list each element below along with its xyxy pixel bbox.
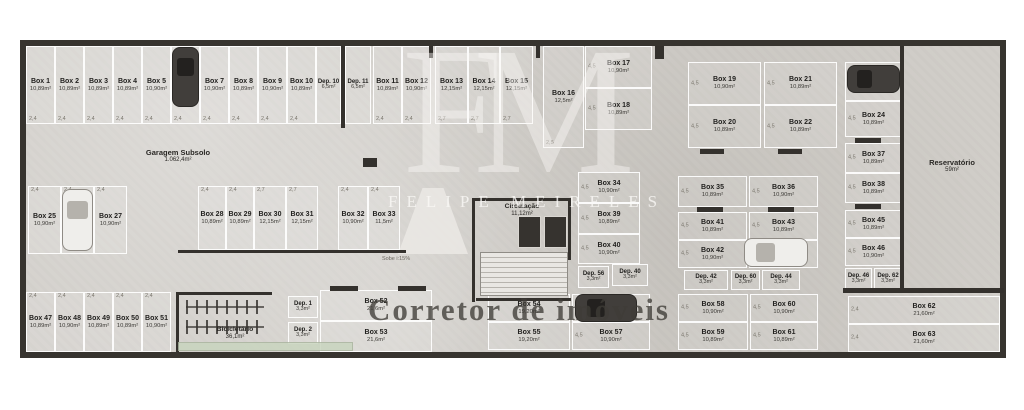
dimension-label: 2,4 [58, 294, 66, 300]
dimension-label: 2,4 [29, 294, 37, 300]
dimension-label: 2,4 [145, 117, 153, 123]
dimension-label: 2,4 [87, 117, 95, 123]
parking-box-37: Box 3710,89m²4,5 [845, 143, 902, 173]
box-area: 12,15m² [473, 86, 494, 92]
box-area: 3,3m² [587, 277, 601, 283]
car-top-view [745, 239, 807, 266]
box-label: Box 17 [607, 60, 630, 68]
box-area: 10,90m² [146, 86, 167, 92]
dimension-label: 2,4 [29, 117, 37, 123]
bike-room-label: Bicicletário 36,1m² [190, 326, 280, 341]
box-area: 10,89m² [377, 86, 398, 92]
dimension-label: 4,5 [681, 305, 689, 311]
wall-segment [178, 250, 406, 253]
box-area: 12,15m² [506, 86, 527, 92]
box-label: Box 43 [772, 219, 795, 227]
box-area: 10,89m² [229, 219, 250, 225]
box-area: 10,90m² [702, 309, 723, 315]
storage-dep-1: Dep. 13,3m² [288, 296, 318, 318]
box-label: Box 55 [518, 329, 541, 337]
parking-box-55: Box 5519,20m² [488, 322, 570, 350]
dimension-label: 2,4 [31, 188, 39, 194]
box-area: 6,5m² [322, 85, 336, 91]
box-label: Box 14 [473, 78, 496, 86]
floorplan-page: Garagem Subsolo 1.062,4m² Circulação 11,… [0, 0, 1024, 410]
dimension-label: 2,4 [116, 294, 124, 300]
wall-segment [655, 46, 664, 59]
box-area: 10,89m² [30, 323, 51, 329]
dimension-label: 4,5 [767, 124, 775, 130]
wall-segment [429, 46, 433, 58]
box-area: 10,89m² [702, 227, 723, 233]
box-area: 10,89m² [773, 337, 794, 343]
box-area: 21,60m² [913, 339, 934, 345]
parking-box-13: Box 1312,15m²2,7 [435, 46, 468, 124]
dimension-label: 4,5 [681, 251, 689, 257]
parking-box-57: Box 5710,90m²4,5 [572, 322, 650, 350]
parking-box-43: Box 4310,89m²4,5 [749, 212, 818, 240]
box-area: 10,90m² [773, 192, 794, 198]
box-label: Box 52 [365, 298, 388, 306]
dimension-label: 2,4 [229, 188, 237, 194]
parking-box-38: Box 3810,89m²4,5 [845, 173, 902, 203]
garage-area: 1.062,4m² [118, 157, 238, 164]
parking-box-21: Box 2110,89m²4,5 [764, 62, 837, 105]
dimension-label: 2,4 [371, 188, 379, 194]
box-label: Box 35 [701, 184, 724, 192]
box-label: Box 4 [118, 78, 137, 86]
parking-box-17: Box 1710,90m²4,5 [585, 46, 652, 88]
reservoir-name: Reservatório [904, 158, 1000, 167]
parking-box-61: Box 6110,89m²4,5 [750, 322, 818, 350]
box-area: 10,90m² [34, 221, 55, 227]
dimension-label: 2,5 [546, 141, 554, 147]
dimension-label: 2,4 [851, 335, 859, 341]
dimension-label: 2,7 [471, 117, 479, 123]
box-area: 3,3m² [774, 280, 788, 286]
box-area: 10,90m² [406, 86, 427, 92]
box-area: 10,90m² [598, 250, 619, 256]
dimension-label: 4,5 [681, 333, 689, 339]
box-label: Box 5 [147, 78, 166, 86]
box-area: 21,60m² [913, 311, 934, 317]
box-label: Box 22 [789, 119, 812, 127]
parking-box-24: Box 2410,89m²4,5 [845, 101, 902, 137]
wall-segment [855, 138, 881, 143]
parking-box-9: Box 910,90m²2,4 [258, 46, 287, 124]
storage-dep-60: Dep. 603,3m² [731, 270, 760, 290]
box-label: Box 32 [342, 211, 365, 219]
wall-segment [363, 158, 377, 167]
wall-segment [768, 207, 794, 212]
box-label: Box 30 [259, 211, 282, 219]
parking-box-46: Box 4610,90m²4,5 [845, 238, 902, 266]
parking-box-18: Box 1810,89m²4,5 [585, 88, 652, 130]
box-area: 10,90m² [342, 219, 363, 225]
box-area: 10,90m² [59, 323, 80, 329]
dimension-label: 4,5 [691, 124, 699, 130]
car-top-view [63, 190, 92, 250]
parking-box-36: Box 3610,90m²4,5 [749, 176, 818, 207]
parking-box-5: Box 510,90m²2,4 [142, 46, 171, 124]
box-area: 10,90m² [100, 221, 121, 227]
car-top-view [173, 48, 198, 106]
box-area: 10,90m² [702, 255, 723, 261]
dimension-label: 2,4 [87, 294, 95, 300]
box-label: Box 28 [201, 211, 224, 219]
parking-box-45: Box 4510,89m²4,5 [845, 210, 902, 238]
box-label: Box 34 [598, 180, 621, 188]
dimension-label: 2,4 [232, 117, 240, 123]
parking-box-19: Box 1910,90m²4,5 [688, 62, 761, 105]
box-label: Box 46 [862, 245, 885, 253]
box-area: 10,90m² [773, 309, 794, 315]
car-windshield [67, 201, 87, 219]
box-label: Box 13 [440, 78, 463, 86]
box-area: 10,89m² [702, 337, 723, 343]
dimension-label: 4,5 [581, 216, 589, 222]
box-label: Box 2 [60, 78, 79, 86]
parking-box-33: Box 3311,5m²2,4 [368, 186, 400, 250]
dimension-label: 4,5 [752, 189, 760, 195]
parking-box-30: Box 3012,15m²2,7 [254, 186, 286, 250]
box-label: Box 27 [99, 213, 122, 221]
dimension-label: 2,4 [376, 117, 384, 123]
dimension-label: 2,7 [503, 117, 511, 123]
dimension-label: 4,5 [681, 189, 689, 195]
box-label: Box 16 [552, 90, 575, 98]
garage-name: Garagem Subsolo [118, 148, 238, 157]
car-top-view [848, 66, 899, 92]
wall-segment [330, 286, 358, 291]
parking-box-7: Box 710,90m²2,4 [200, 46, 229, 124]
car-windshield [587, 299, 605, 317]
dimension-label: 2,4 [145, 294, 153, 300]
box-area: 10,89m² [291, 86, 312, 92]
dimension-label: 4,5 [848, 249, 856, 255]
wall-segment [472, 198, 475, 302]
parking-box-50: Box 5010,89m²2,4 [113, 292, 142, 352]
parking-box-15: Box 1512,15m²2,7 [500, 46, 533, 124]
box-area: 21,6m² [367, 337, 385, 343]
box-label: Box 60 [773, 301, 796, 309]
dimension-label: 4,5 [753, 333, 761, 339]
box-label: Box 20 [713, 119, 736, 127]
dimension-label: 4,5 [575, 333, 583, 339]
dimension-label: 2,4 [203, 117, 211, 123]
car-windshield [756, 243, 775, 262]
box-area: 19,20m² [518, 337, 539, 343]
box-area: 10,90m² [204, 86, 225, 92]
parking-box-40: Box 4010,90m²4,5 [578, 234, 640, 264]
dimension-label: 4,5 [691, 81, 699, 87]
box-area: 3,3m² [852, 279, 866, 285]
dimension-label: 4,5 [848, 221, 856, 227]
wall-segment [536, 46, 540, 58]
box-label: Box 29 [229, 211, 252, 219]
dimension-label: 2,4 [261, 117, 269, 123]
storage-dep-11: Dep. 116,5m² [345, 46, 371, 124]
elevator-shaft [518, 216, 541, 248]
box-label: Box 50 [116, 315, 139, 323]
dimension-label: 2,4 [58, 117, 66, 123]
box-area: 10,90m² [714, 84, 735, 90]
box-area: 10,90m² [608, 68, 629, 74]
car-windshield [857, 70, 872, 88]
wall-segment [700, 149, 724, 154]
box-label: Box 3 [89, 78, 108, 86]
wall-segment [476, 298, 571, 301]
box-label: Box 48 [58, 315, 81, 323]
dimension-label: 4,5 [681, 223, 689, 229]
parking-box-8: Box 810,89m²2,4 [229, 46, 258, 124]
box-area: 11,5m² [375, 219, 393, 225]
box-area: 10,90m² [598, 188, 619, 194]
parking-box-27: Box 2710,90m²2,4 [94, 186, 127, 254]
box-label: Box 37 [862, 151, 885, 159]
box-area: 10,89m² [59, 86, 80, 92]
dimension-label: 2,4 [290, 117, 298, 123]
storage-dep-42: Dep. 423,3m² [684, 270, 728, 290]
box-label: Box 57 [600, 329, 623, 337]
reservoir-area: 59m² [904, 167, 1000, 174]
dimension-label: 2,4 [174, 117, 182, 123]
box-label: Box 58 [702, 301, 725, 309]
box-area: 3,3m² [699, 280, 713, 286]
box-area: 10,89m² [714, 127, 735, 133]
parking-box-47: Box 4710,89m²2,4 [26, 292, 55, 352]
dimension-label: 4,5 [848, 185, 856, 191]
box-label: Box 47 [29, 315, 52, 323]
dimension-label: 4,5 [581, 185, 589, 191]
parking-box-52: Box 5221,6m² [320, 290, 432, 321]
box-area: 10,89m² [790, 127, 811, 133]
storage-dep-2: Dep. 23,3m² [288, 322, 318, 344]
box-area: 3,3m² [296, 307, 310, 313]
parking-box-14: Box 1412,15m²2,7 [468, 46, 500, 124]
reservoir-room-label: Reservatório 59m² [904, 158, 1000, 174]
wall-segment [778, 149, 802, 154]
dimension-label: 2,7 [438, 117, 446, 123]
box-area: 10,89m² [598, 219, 619, 225]
parking-box-41: Box 4110,89m²4,5 [678, 212, 747, 240]
parking-box-2: Box 210,89m²2,4 [55, 46, 84, 124]
box-label: Box 41 [701, 219, 724, 227]
box-area: 10,90m² [863, 253, 884, 259]
elevator-shaft [544, 216, 567, 248]
garage-room-label: Garagem Subsolo 1.062,4m² [118, 148, 238, 164]
box-area: 10,89m² [863, 225, 884, 231]
box-label: Box 21 [789, 76, 812, 84]
parking-box-20: Box 2010,89m²4,5 [688, 105, 761, 148]
car-windshield [177, 58, 195, 75]
dimension-label: 2,4 [851, 307, 859, 313]
dimension-label: 2,7 [257, 188, 265, 194]
box-area: 10,89m² [790, 84, 811, 90]
parking-box-10: Box 1010,89m²2,4 [287, 46, 316, 124]
box-area: 10,89m² [201, 219, 222, 225]
storage-dep-46: Dep. 463,3m² [845, 268, 872, 290]
box-area: 10,90m² [600, 337, 621, 343]
parking-box-31: Box 3112,15m²2,7 [286, 186, 318, 250]
box-area: 3,3m² [296, 333, 310, 339]
box-label: Box 18 [607, 102, 630, 110]
circulation-area: 11,12m² [476, 211, 568, 218]
box-area: 3,3m² [623, 275, 637, 281]
parking-box-32: Box 3210,90m²2,4 [338, 186, 368, 250]
box-label: Box 12 [405, 78, 428, 86]
dimension-label: 4,5 [767, 81, 775, 87]
storage-dep-62: Dep. 623,3m² [874, 268, 902, 290]
box-label: Box 42 [701, 247, 724, 255]
parking-box-58: Box 5810,90m²4,5 [678, 294, 748, 322]
box-label: Box 9 [263, 78, 282, 86]
box-label: Box 31 [291, 211, 314, 219]
box-label: Box 8 [234, 78, 253, 86]
dimension-label: 2,4 [116, 117, 124, 123]
storage-dep-10: Dep. 106,5m² [316, 46, 341, 124]
box-area: 10,89m² [117, 86, 138, 92]
dimension-label: 2,4 [405, 117, 413, 123]
box-label: Box 24 [862, 112, 885, 120]
box-label: Box 25 [33, 213, 56, 221]
parking-box-59: Box 5910,89m²4,5 [678, 322, 748, 350]
dimension-label: 4,5 [752, 223, 760, 229]
box-label: Box 59 [702, 329, 725, 337]
box-area: 12,5m² [554, 98, 572, 104]
bike-room-name: Bicicletário [190, 326, 280, 334]
parking-box-25: Box 2510,90m²2,4 [28, 186, 61, 254]
box-label: Box 10 [290, 78, 313, 86]
box-label: Box 40 [598, 242, 621, 250]
box-area: 3,3m² [881, 279, 895, 285]
parking-box-63: Box 6321,60m²2,4 [848, 324, 1000, 352]
box-area: 10,90m² [146, 323, 167, 329]
dimension-label: 4,5 [588, 106, 596, 112]
box-label: Box 19 [713, 76, 736, 84]
box-area: 10,89m² [233, 86, 254, 92]
box-area: 10,89m² [30, 86, 51, 92]
wall-segment [855, 204, 881, 209]
box-area: 10,89m² [608, 110, 629, 116]
box-area: 10,89m² [863, 189, 884, 195]
box-label: Box 7 [205, 78, 224, 86]
box-area: 10,89m² [863, 120, 884, 126]
box-area: 10,89m² [863, 159, 884, 165]
box-label: Box 11 [376, 78, 399, 86]
box-area: 10,89m² [773, 227, 794, 233]
dimension-label: 2,7 [289, 188, 297, 194]
wall-segment [178, 292, 272, 295]
box-label: Box 36 [772, 184, 795, 192]
dimension-label: 2,4 [341, 188, 349, 194]
box-label: Box 49 [87, 315, 110, 323]
box-area: 10,89m² [117, 323, 138, 329]
parking-box-4: Box 410,89m²2,4 [113, 46, 142, 124]
garage-floorplan: Garagem Subsolo 1.062,4m² Circulação 11,… [0, 0, 1024, 410]
box-area: 10,90m² [262, 86, 283, 92]
box-label: Box 39 [598, 211, 621, 219]
circulation-name: Circulação [476, 203, 568, 211]
wall-segment [472, 198, 571, 201]
parking-box-48: Box 4810,90m²2,4 [55, 292, 84, 352]
parking-box-11: Box 1110,89m²2,4 [373, 46, 402, 124]
parking-box-60: Box 6010,90m²4,5 [750, 294, 818, 322]
dimension-label: 2,4 [201, 188, 209, 194]
dimension-label: 4,5 [581, 246, 589, 252]
landscape-strip [178, 342, 353, 351]
bike-room-area: 36,1m² [190, 334, 280, 341]
box-area: 21,6m² [367, 306, 385, 312]
wall-segment [697, 207, 723, 212]
parking-box-39: Box 3910,89m²4,5 [578, 203, 640, 234]
parking-box-3: Box 310,89m²2,4 [84, 46, 113, 124]
box-area: 10,89m² [88, 323, 109, 329]
wall-segment [398, 286, 426, 291]
box-area: 3,3m² [739, 280, 753, 286]
box-area: 10,89m² [702, 192, 723, 198]
wall-segment [843, 288, 1004, 293]
box-area: 12,15m² [259, 219, 280, 225]
box-label: Box 38 [862, 181, 885, 189]
box-label: Box 61 [773, 329, 796, 337]
staircase [480, 252, 568, 296]
parking-box-1: Box 110,89m²2,4 [26, 46, 55, 124]
circulation-room-label: Circulação 11,12m² [476, 203, 568, 218]
box-label: Box 15 [505, 78, 528, 86]
box-label: Box 54 [518, 301, 541, 309]
box-label: Box 1 [31, 78, 50, 86]
parking-box-51: Box 5110,90m²2,4 [142, 292, 171, 352]
box-label: Box 63 [913, 331, 936, 339]
parking-box-28: Box 2810,89m²2,4 [198, 186, 226, 250]
parking-box-22: Box 2210,89m²4,5 [764, 105, 837, 148]
box-label: Box 51 [145, 315, 168, 323]
box-label: Box 45 [862, 217, 885, 225]
bike-rack [186, 300, 264, 314]
parking-box-16: Box 1612,5m²2,5 [543, 46, 584, 148]
box-label: Box 62 [913, 303, 936, 311]
wall-segment [568, 198, 571, 260]
box-area: 6,5m² [351, 85, 365, 91]
dimension-label: 4,5 [588, 64, 596, 70]
wall-segment [341, 46, 345, 128]
car-top-view [576, 295, 636, 321]
parking-box-42: Box 4210,90m²4,5 [678, 240, 747, 268]
storage-dep-44: Dep. 443,3m² [762, 270, 800, 290]
box-area: 12,15m² [441, 86, 462, 92]
box-label: Box 53 [365, 329, 388, 337]
parking-box-12: Box 1210,90m²2,4 [402, 46, 431, 124]
dimension-label: 4,5 [848, 116, 856, 122]
dimension-label: 2,4 [97, 188, 105, 194]
box-label: Box 33 [373, 211, 396, 219]
dimension-label: 4,5 [753, 305, 761, 311]
parking-box-35: Box 3510,89m²4,5 [678, 176, 747, 207]
parking-box-29: Box 2910,89m²2,4 [226, 186, 254, 250]
parking-box-34: Box 3410,90m²4,5 [578, 172, 640, 203]
parking-box-49: Box 4910,89m²2,4 [84, 292, 113, 352]
storage-dep-40: Dep. 403,3m² [612, 264, 648, 286]
dimension-label: 4,5 [848, 155, 856, 161]
storage-dep-56: Dep. 563,3m² [578, 266, 609, 288]
box-area: 12,15m² [291, 219, 312, 225]
parking-box-62: Box 6221,60m²2,4 [848, 296, 1000, 324]
box-area: 19,20m² [518, 309, 539, 315]
box-area: 10,89m² [88, 86, 109, 92]
ramp-note: Sobe i:15% [382, 256, 410, 262]
